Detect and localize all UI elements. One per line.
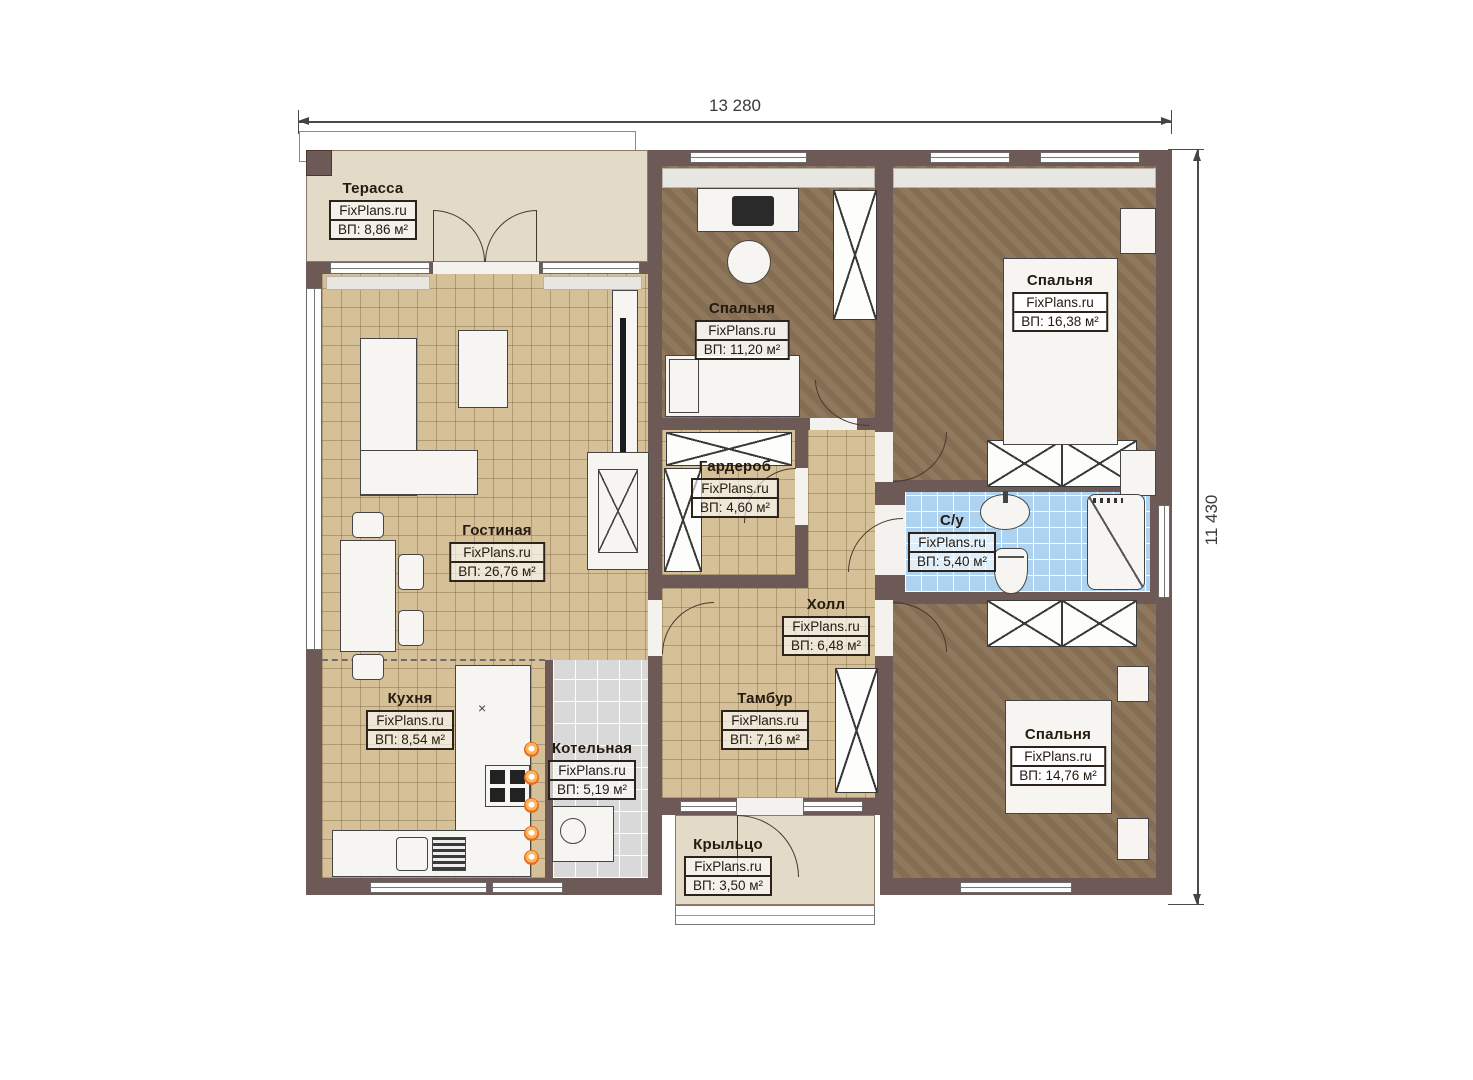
window <box>492 882 563 893</box>
dim-width-label: 13 280 <box>709 96 761 116</box>
terrace-brand: FixPlans.ru <box>331 202 415 219</box>
window <box>330 262 430 274</box>
bathroom-brand: FixPlans.ru <box>910 534 994 551</box>
coffee-table <box>458 330 508 408</box>
window-sill <box>543 276 642 290</box>
window <box>803 801 863 812</box>
bedroom3-name: Спальня <box>1010 726 1106 743</box>
bathroom-area: ВП: 5,40 м² <box>910 551 994 570</box>
dim-height-label: 11 430 <box>1202 495 1222 546</box>
chair <box>398 610 424 646</box>
vestibule-brand: FixPlans.ru <box>723 712 807 729</box>
label-vestibule: Тамбур FixPlans.ruВП: 7,16 м² <box>721 690 809 750</box>
nightstand <box>1120 208 1156 254</box>
arrow-right-icon <box>1161 117 1172 125</box>
dining-table <box>340 540 396 652</box>
closet <box>987 440 1062 487</box>
living-brand: FixPlans.ru <box>451 544 543 561</box>
terrace-post <box>306 150 332 176</box>
bedroom3-area: ВП: 14,76 м² <box>1012 765 1104 784</box>
door-opening <box>795 468 808 525</box>
window <box>1158 505 1170 598</box>
living-name: Гостиная <box>449 522 545 539</box>
flame-icon <box>524 798 539 813</box>
porch-name: Крыльцо <box>684 836 772 853</box>
door-opening <box>433 262 539 274</box>
closet <box>987 600 1062 647</box>
label-kitchen: Кухня FixPlans.ruВП: 8,54 м² <box>366 690 454 750</box>
closet <box>1062 600 1137 647</box>
dim-line-top <box>298 121 1172 123</box>
window <box>370 882 487 893</box>
office-chair <box>727 240 771 284</box>
terrace-area: ВП: 8,86 м² <box>331 219 415 238</box>
appliance <box>432 837 466 871</box>
kitchen-area: ВП: 8,54 м² <box>368 729 452 748</box>
bedroom2-area: ВП: 16,38 м² <box>1014 311 1106 330</box>
floor-plan: 13 280 11 430 <box>0 0 1473 1080</box>
nightstand <box>1117 818 1149 860</box>
window <box>542 262 640 274</box>
bedroom2-brand: FixPlans.ru <box>1014 294 1106 311</box>
window <box>1040 152 1140 163</box>
fireplace <box>587 452 649 570</box>
pillow <box>669 359 699 413</box>
bedroom3-brand: FixPlans.ru <box>1012 748 1104 765</box>
label-bedroom3: Спальня FixPlans.ruВП: 14,76 м² <box>1010 726 1106 786</box>
vestibule-name: Тамбур <box>721 690 809 707</box>
sofa-chaise <box>360 450 478 495</box>
shelf <box>893 168 1156 188</box>
kitchen-sink <box>396 837 428 871</box>
toilet <box>994 548 1028 594</box>
window <box>960 882 1072 893</box>
nightstand <box>1120 450 1156 496</box>
wardrobe-brand: FixPlans.ru <box>693 480 777 497</box>
shower <box>1087 494 1145 590</box>
flame-icon <box>524 826 539 841</box>
chair <box>352 654 384 680</box>
boiler-area: ВП: 5,19 м² <box>550 779 634 798</box>
closet <box>835 668 878 793</box>
nightstand <box>1117 666 1149 702</box>
chair <box>398 554 424 590</box>
kitchen-name: Кухня <box>366 690 454 707</box>
bathroom-name: С/у <box>908 512 996 529</box>
boiler-brand: FixPlans.ru <box>550 762 634 779</box>
wardrobe-area: ВП: 4,60 м² <box>693 497 777 516</box>
vestibule-area: ВП: 7,16 м² <box>723 729 807 748</box>
cabinet-mark-icon: × <box>478 700 486 716</box>
closet <box>833 190 877 320</box>
label-boiler: Котельная FixPlans.ruВП: 5,19 м² <box>548 740 636 800</box>
stove <box>485 765 530 807</box>
hall-brand: FixPlans.ru <box>784 618 868 635</box>
door-opening <box>875 432 893 482</box>
label-porch: Крыльцо FixPlans.ruВП: 3,50 м² <box>684 836 772 896</box>
label-bedroom1: Спальня FixPlans.ruВП: 11,20 м² <box>695 300 790 360</box>
window <box>680 801 737 812</box>
porch-area: ВП: 3,50 м² <box>686 875 770 894</box>
label-terrace: Терасса FixPlans.ruВП: 8,86 м² <box>329 180 417 240</box>
label-wardrobe: Гардероб FixPlans.ruВП: 4,60 м² <box>691 458 779 518</box>
label-living: Гостиная FixPlans.ruВП: 26,76 м² <box>449 522 545 582</box>
porch-steps <box>675 905 875 925</box>
wardrobe-name: Гардероб <box>691 458 779 475</box>
boiler-name: Котельная <box>548 740 636 757</box>
porch-brand: FixPlans.ru <box>686 858 770 875</box>
label-bedroom2: Спальня FixPlans.ruВП: 16,38 м² <box>1012 272 1108 332</box>
bedroom1-brand: FixPlans.ru <box>697 322 788 339</box>
hall-area: ВП: 6,48 м² <box>784 635 868 654</box>
bedroom2-name: Спальня <box>1012 272 1108 289</box>
arrow-down-icon <box>1193 894 1201 905</box>
living-area: ВП: 26,76 м² <box>451 561 543 580</box>
shelf <box>662 168 875 188</box>
hall-name: Холл <box>782 596 870 613</box>
chair <box>352 512 384 538</box>
flame-icon <box>524 770 539 785</box>
flame-icon <box>524 742 539 757</box>
flame-icon <box>524 850 539 865</box>
panoramic-window <box>306 288 322 650</box>
window-sill <box>326 276 430 290</box>
door-opening <box>648 600 662 656</box>
window <box>930 152 1010 163</box>
dim-line-right <box>1197 150 1199 905</box>
tv-screen <box>620 318 626 473</box>
terrace-name: Терасса <box>329 180 417 197</box>
door-opening <box>737 798 803 815</box>
kitchen-cabinet <box>455 665 531 837</box>
window <box>690 152 807 163</box>
label-hall: Холл FixPlans.ruВП: 6,48 м² <box>782 596 870 656</box>
label-bathroom: С/у FixPlans.ruВП: 5,40 м² <box>908 512 996 572</box>
printer <box>732 196 774 226</box>
bedroom1-name: Спальня <box>695 300 790 317</box>
bedroom1-area: ВП: 11,20 м² <box>697 339 788 358</box>
arrow-left-icon <box>298 117 309 125</box>
kitchen-brand: FixPlans.ru <box>368 712 452 729</box>
washer-drum <box>560 818 586 844</box>
arrow-up-icon <box>1193 150 1201 161</box>
door-opening <box>875 600 893 656</box>
